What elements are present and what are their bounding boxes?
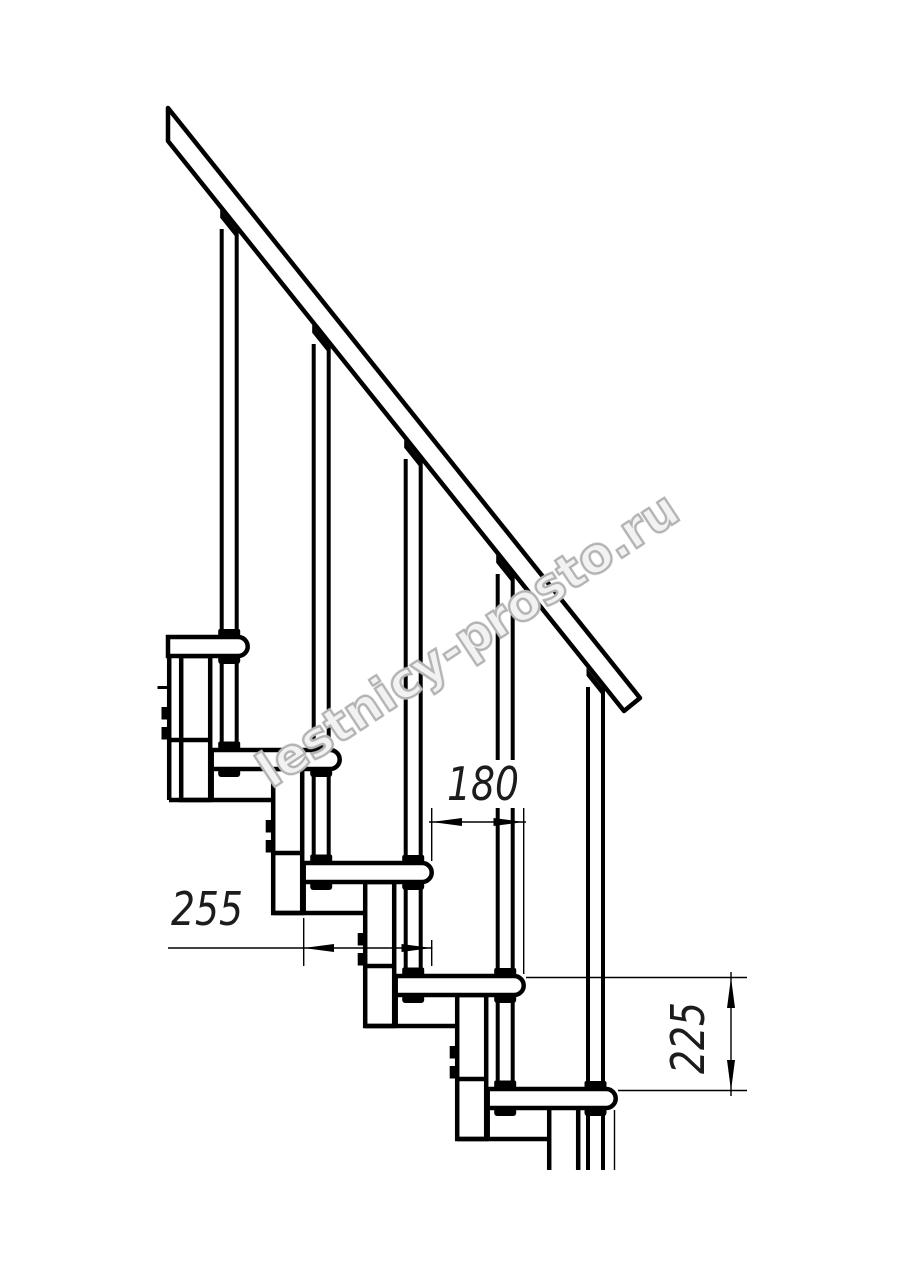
- dimension-label-run: 180: [447, 761, 519, 807]
- tread: [396, 976, 524, 995]
- tread: [304, 863, 432, 882]
- technical-drawing-canvas: 180 255 225 lestnicy-prosto.ru: [0, 0, 914, 1280]
- dimension-label-tread-depth: 255: [171, 886, 243, 932]
- dimension-label-rise: 225: [665, 1002, 711, 1074]
- tread: [168, 637, 248, 656]
- baluster-rail-caps: [220, 210, 604, 698]
- tread: [488, 1089, 616, 1108]
